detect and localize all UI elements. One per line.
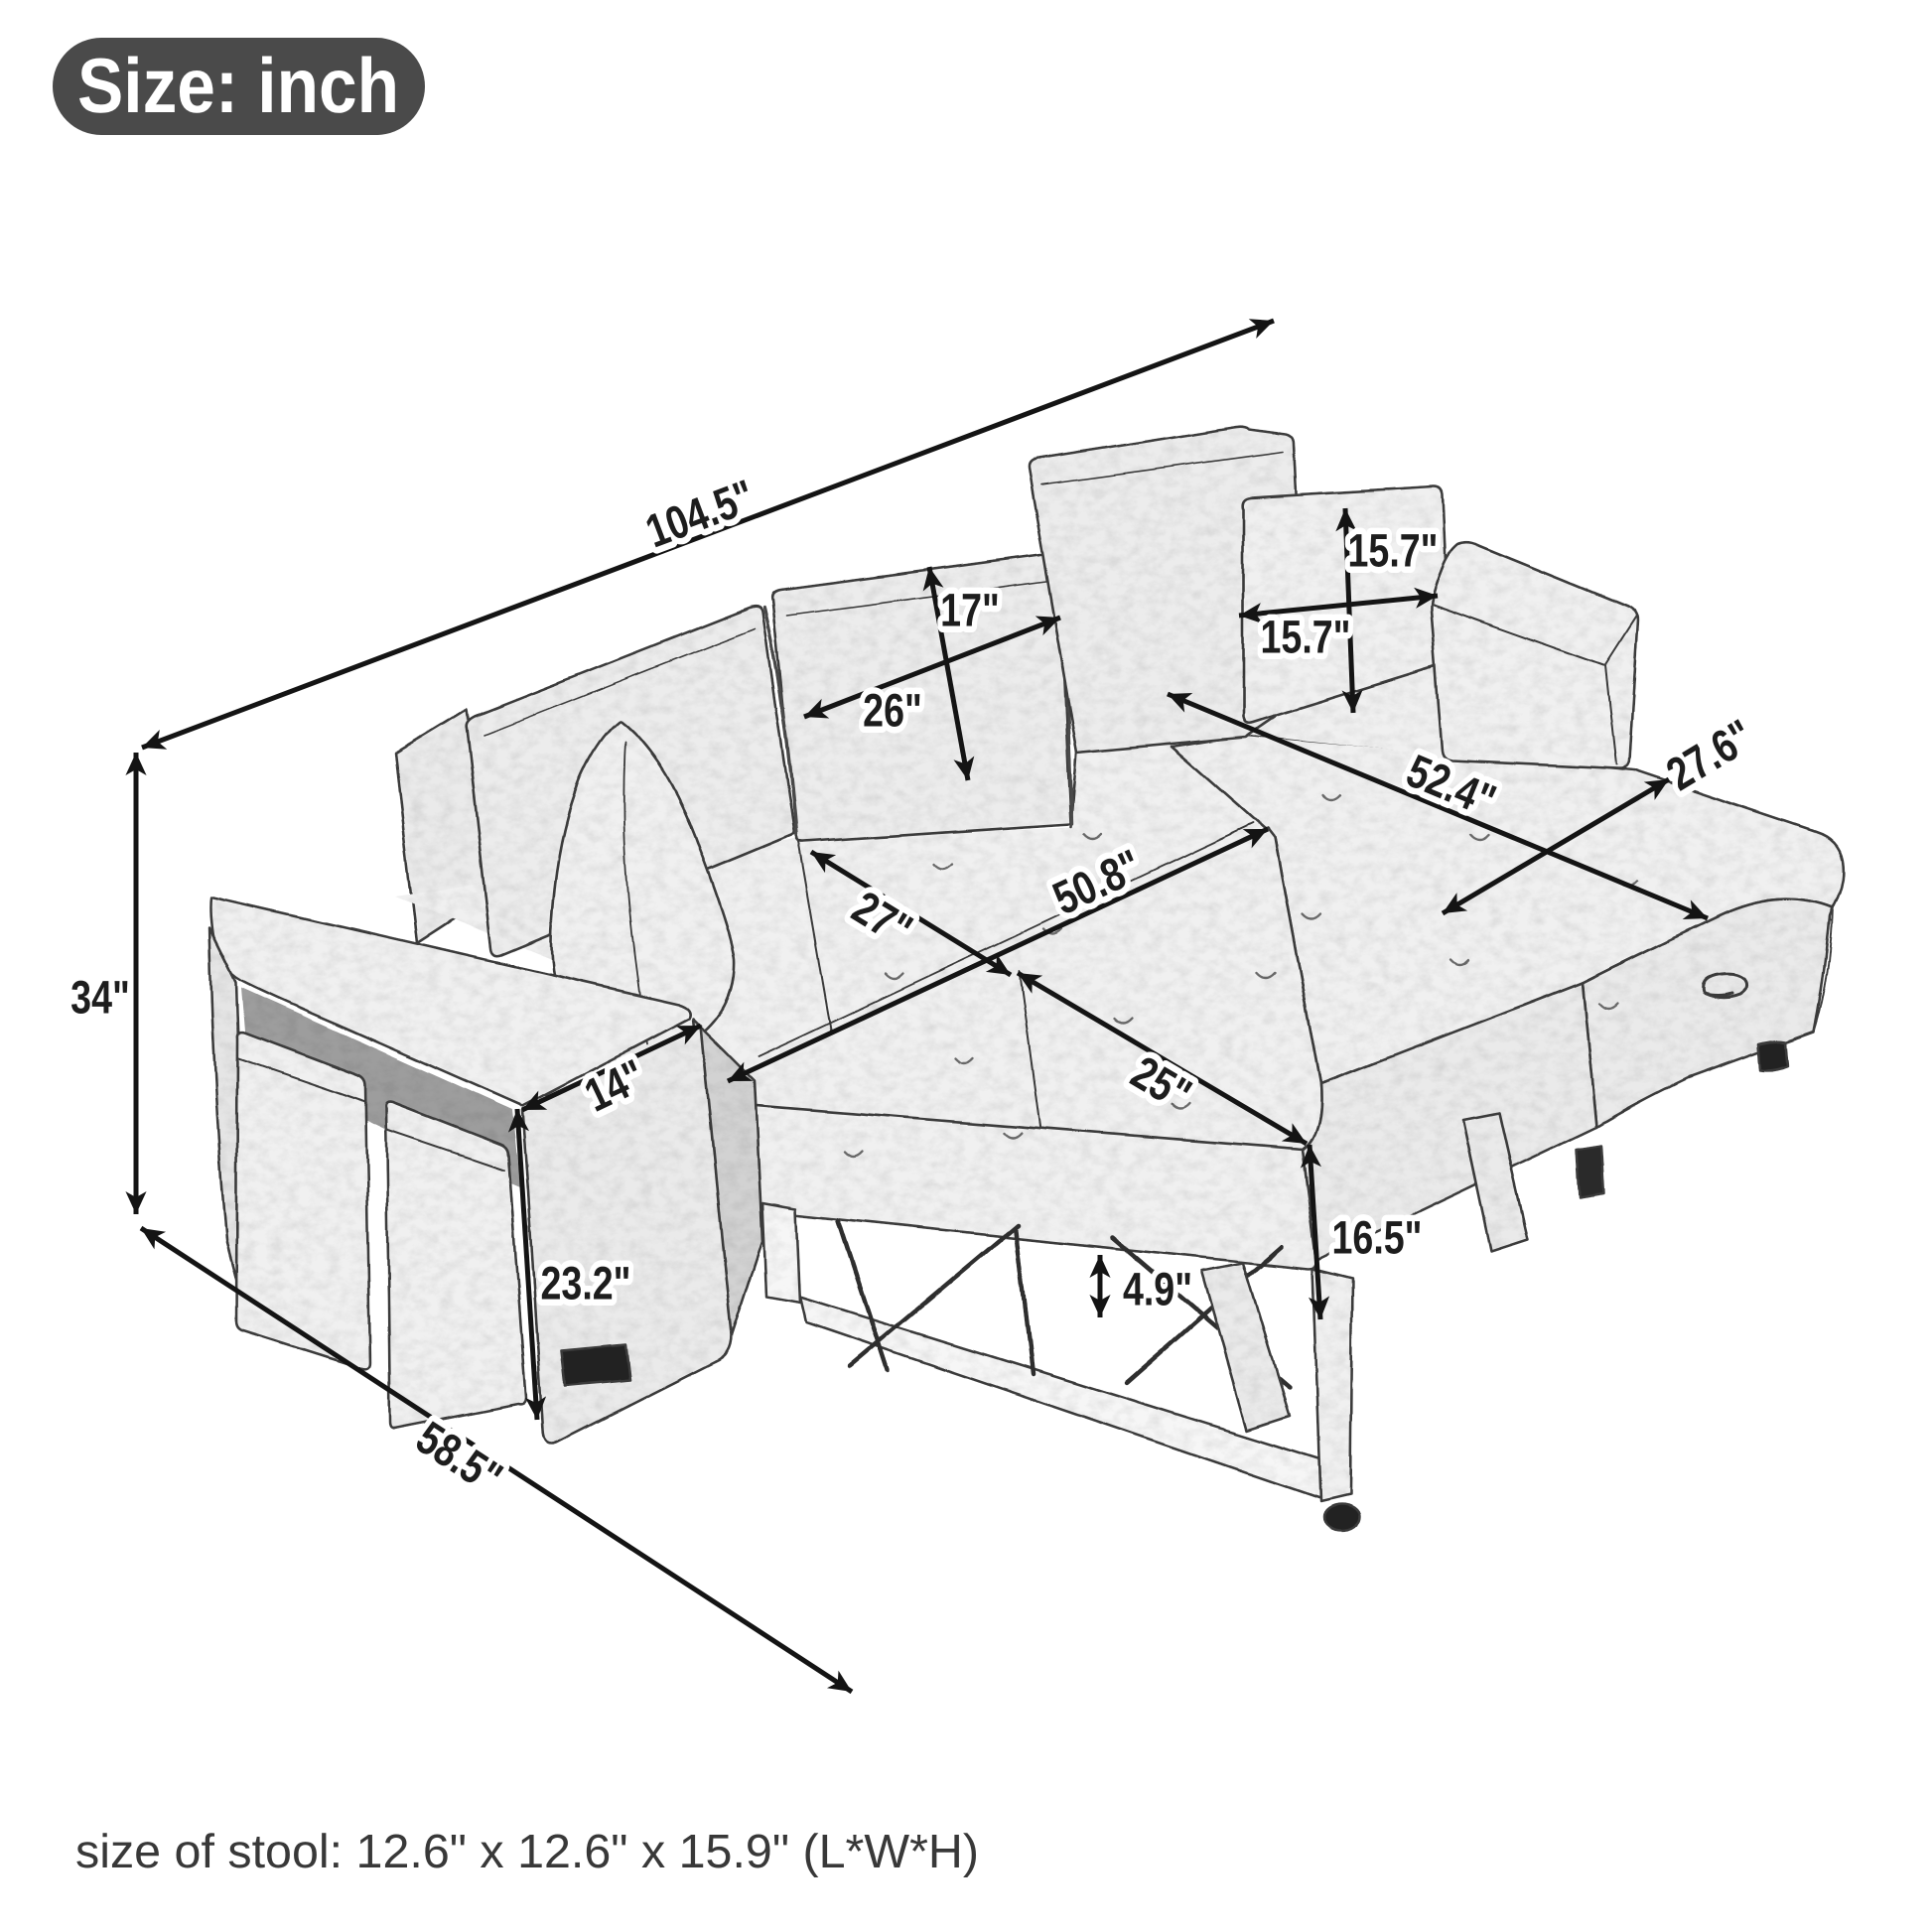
svg-text:Size: inch: Size: inch [77,42,399,129]
svg-text:16.5": 16.5" [1331,1210,1422,1263]
svg-text:17": 17" [940,583,1000,635]
svg-text:26": 26" [863,683,922,736]
svg-text:15.7": 15.7" [1347,523,1438,576]
svg-text:4.9": 4.9" [1123,1262,1192,1314]
svg-text:104.5": 104.5" [638,469,760,557]
svg-text:34": 34" [70,970,130,1023]
svg-text:23.2": 23.2" [540,1256,630,1309]
svg-text:size of stool: 12.6" x 12.6" x: size of stool: 12.6" x 12.6" x 15.9" (L*… [75,1826,979,1878]
svg-text:15.7": 15.7" [1260,610,1350,662]
svg-text:58.5": 58.5" [407,1411,511,1504]
